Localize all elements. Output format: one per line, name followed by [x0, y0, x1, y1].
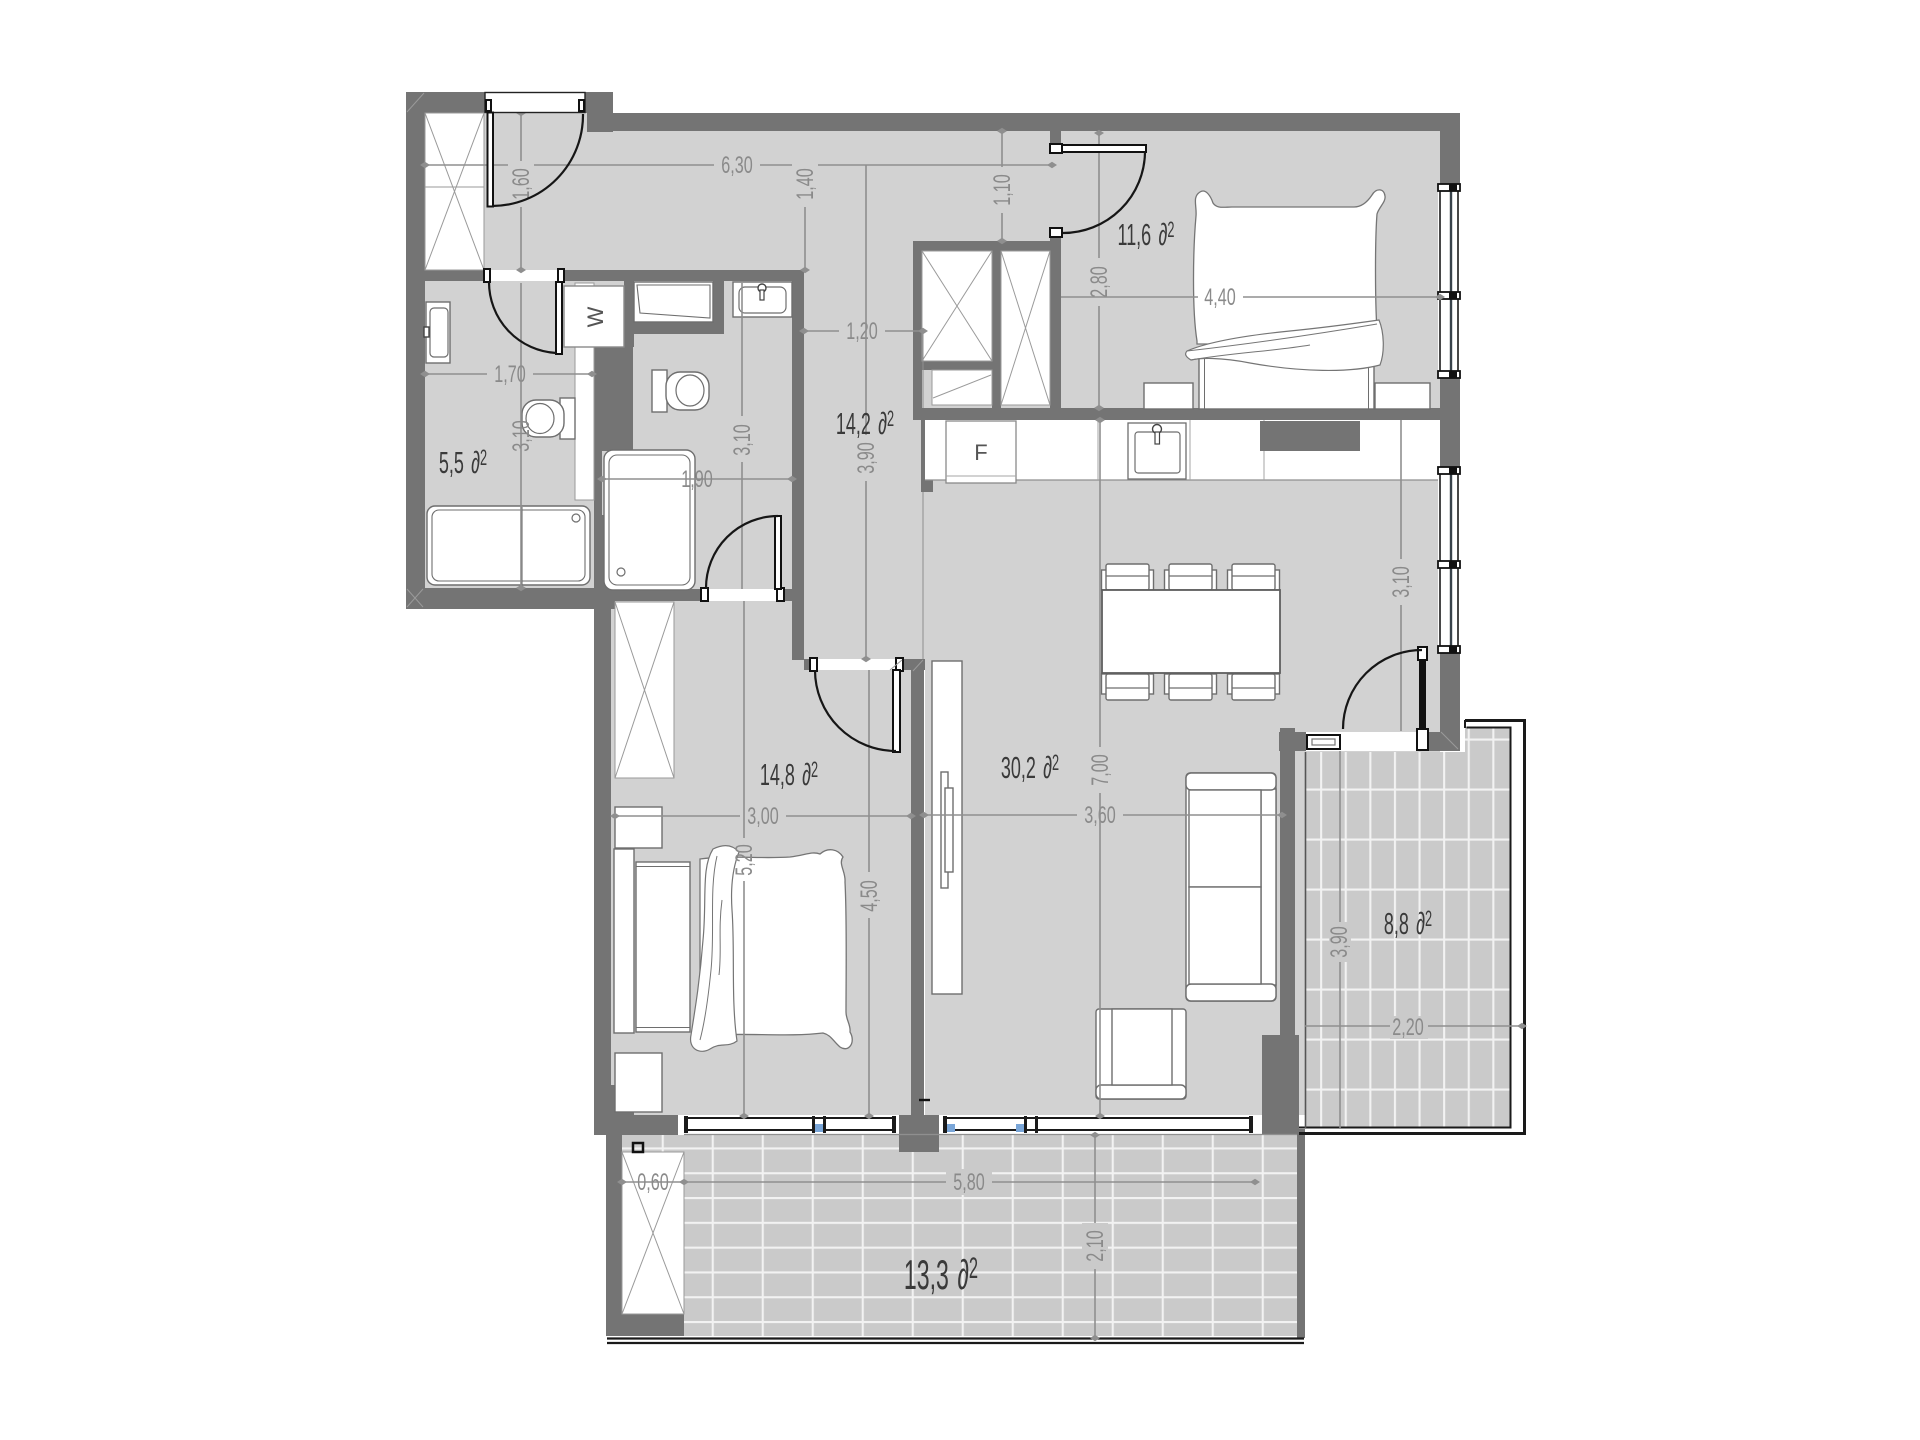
svg-text:2,10: 2,10: [1082, 1230, 1109, 1261]
svg-text:8,8 ∂2: 8,8 ∂2: [1384, 906, 1432, 941]
svg-text:14,2 ∂2: 14,2 ∂2: [836, 406, 894, 441]
svg-text:1,60: 1,60: [508, 168, 535, 199]
svg-text:1,10: 1,10: [989, 174, 1016, 205]
svg-text:F: F: [974, 440, 987, 465]
svg-text:6,30: 6,30: [721, 152, 752, 179]
svg-text:3,00: 3,00: [747, 803, 778, 830]
svg-text:4,50: 4,50: [856, 880, 883, 911]
svg-text:2,80: 2,80: [1086, 266, 1113, 297]
svg-text:1,20: 1,20: [846, 318, 877, 345]
svg-text:3,90: 3,90: [853, 442, 880, 473]
svg-text:13,3 ∂2: 13,3 ∂2: [904, 1252, 978, 1299]
svg-text:W: W: [583, 306, 608, 327]
svg-text:5,80: 5,80: [953, 1169, 984, 1196]
svg-text:3,10: 3,10: [508, 420, 535, 451]
svg-text:0,60: 0,60: [637, 1169, 668, 1196]
svg-text:7,00: 7,00: [1087, 754, 1114, 785]
svg-text:4,40: 4,40: [1204, 284, 1235, 311]
svg-text:5,20: 5,20: [731, 844, 758, 875]
svg-text:14,8 ∂2: 14,8 ∂2: [760, 757, 818, 792]
svg-text:3,10: 3,10: [729, 424, 756, 455]
svg-text:11,6 ∂2: 11,6 ∂2: [1118, 217, 1175, 252]
svg-text:3,10: 3,10: [1388, 566, 1415, 597]
svg-text:1,90: 1,90: [681, 466, 712, 493]
svg-text:30,2 ∂2: 30,2 ∂2: [1001, 750, 1059, 785]
svg-text:3,90: 3,90: [1326, 926, 1353, 957]
svg-text:2,20: 2,20: [1392, 1014, 1423, 1041]
svg-text:5,5 ∂2: 5,5 ∂2: [439, 445, 487, 480]
svg-text:1,40: 1,40: [792, 168, 819, 199]
